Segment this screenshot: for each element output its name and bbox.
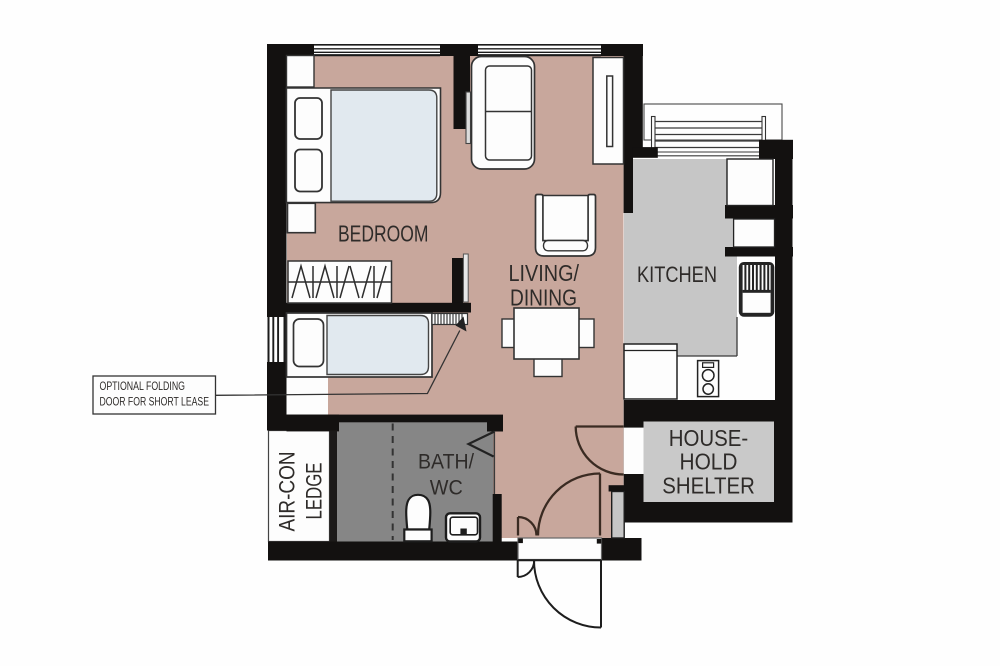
svg-text:WC: WC: [430, 476, 463, 499]
svg-text:AIR-CON: AIR-CON: [275, 452, 300, 532]
svg-text:BEDROOM: BEDROOM: [338, 221, 429, 247]
svg-text:HOLD: HOLD: [680, 449, 738, 475]
svg-text:DINING: DINING: [510, 285, 577, 311]
svg-text:LEDGE: LEDGE: [302, 463, 327, 520]
svg-text:OPTIONAL FOLDING: OPTIONAL FOLDING: [100, 379, 186, 393]
svg-text:SHELTER: SHELTER: [662, 472, 755, 498]
svg-text:KITCHEN: KITCHEN: [637, 262, 717, 287]
svg-text:HOUSE-: HOUSE-: [669, 425, 749, 451]
svg-text:DOOR FOR SHORT LEASE: DOOR FOR SHORT LEASE: [100, 395, 210, 409]
svg-text:BATH/: BATH/: [418, 450, 474, 473]
svg-text:LIVING/: LIVING/: [509, 260, 580, 286]
